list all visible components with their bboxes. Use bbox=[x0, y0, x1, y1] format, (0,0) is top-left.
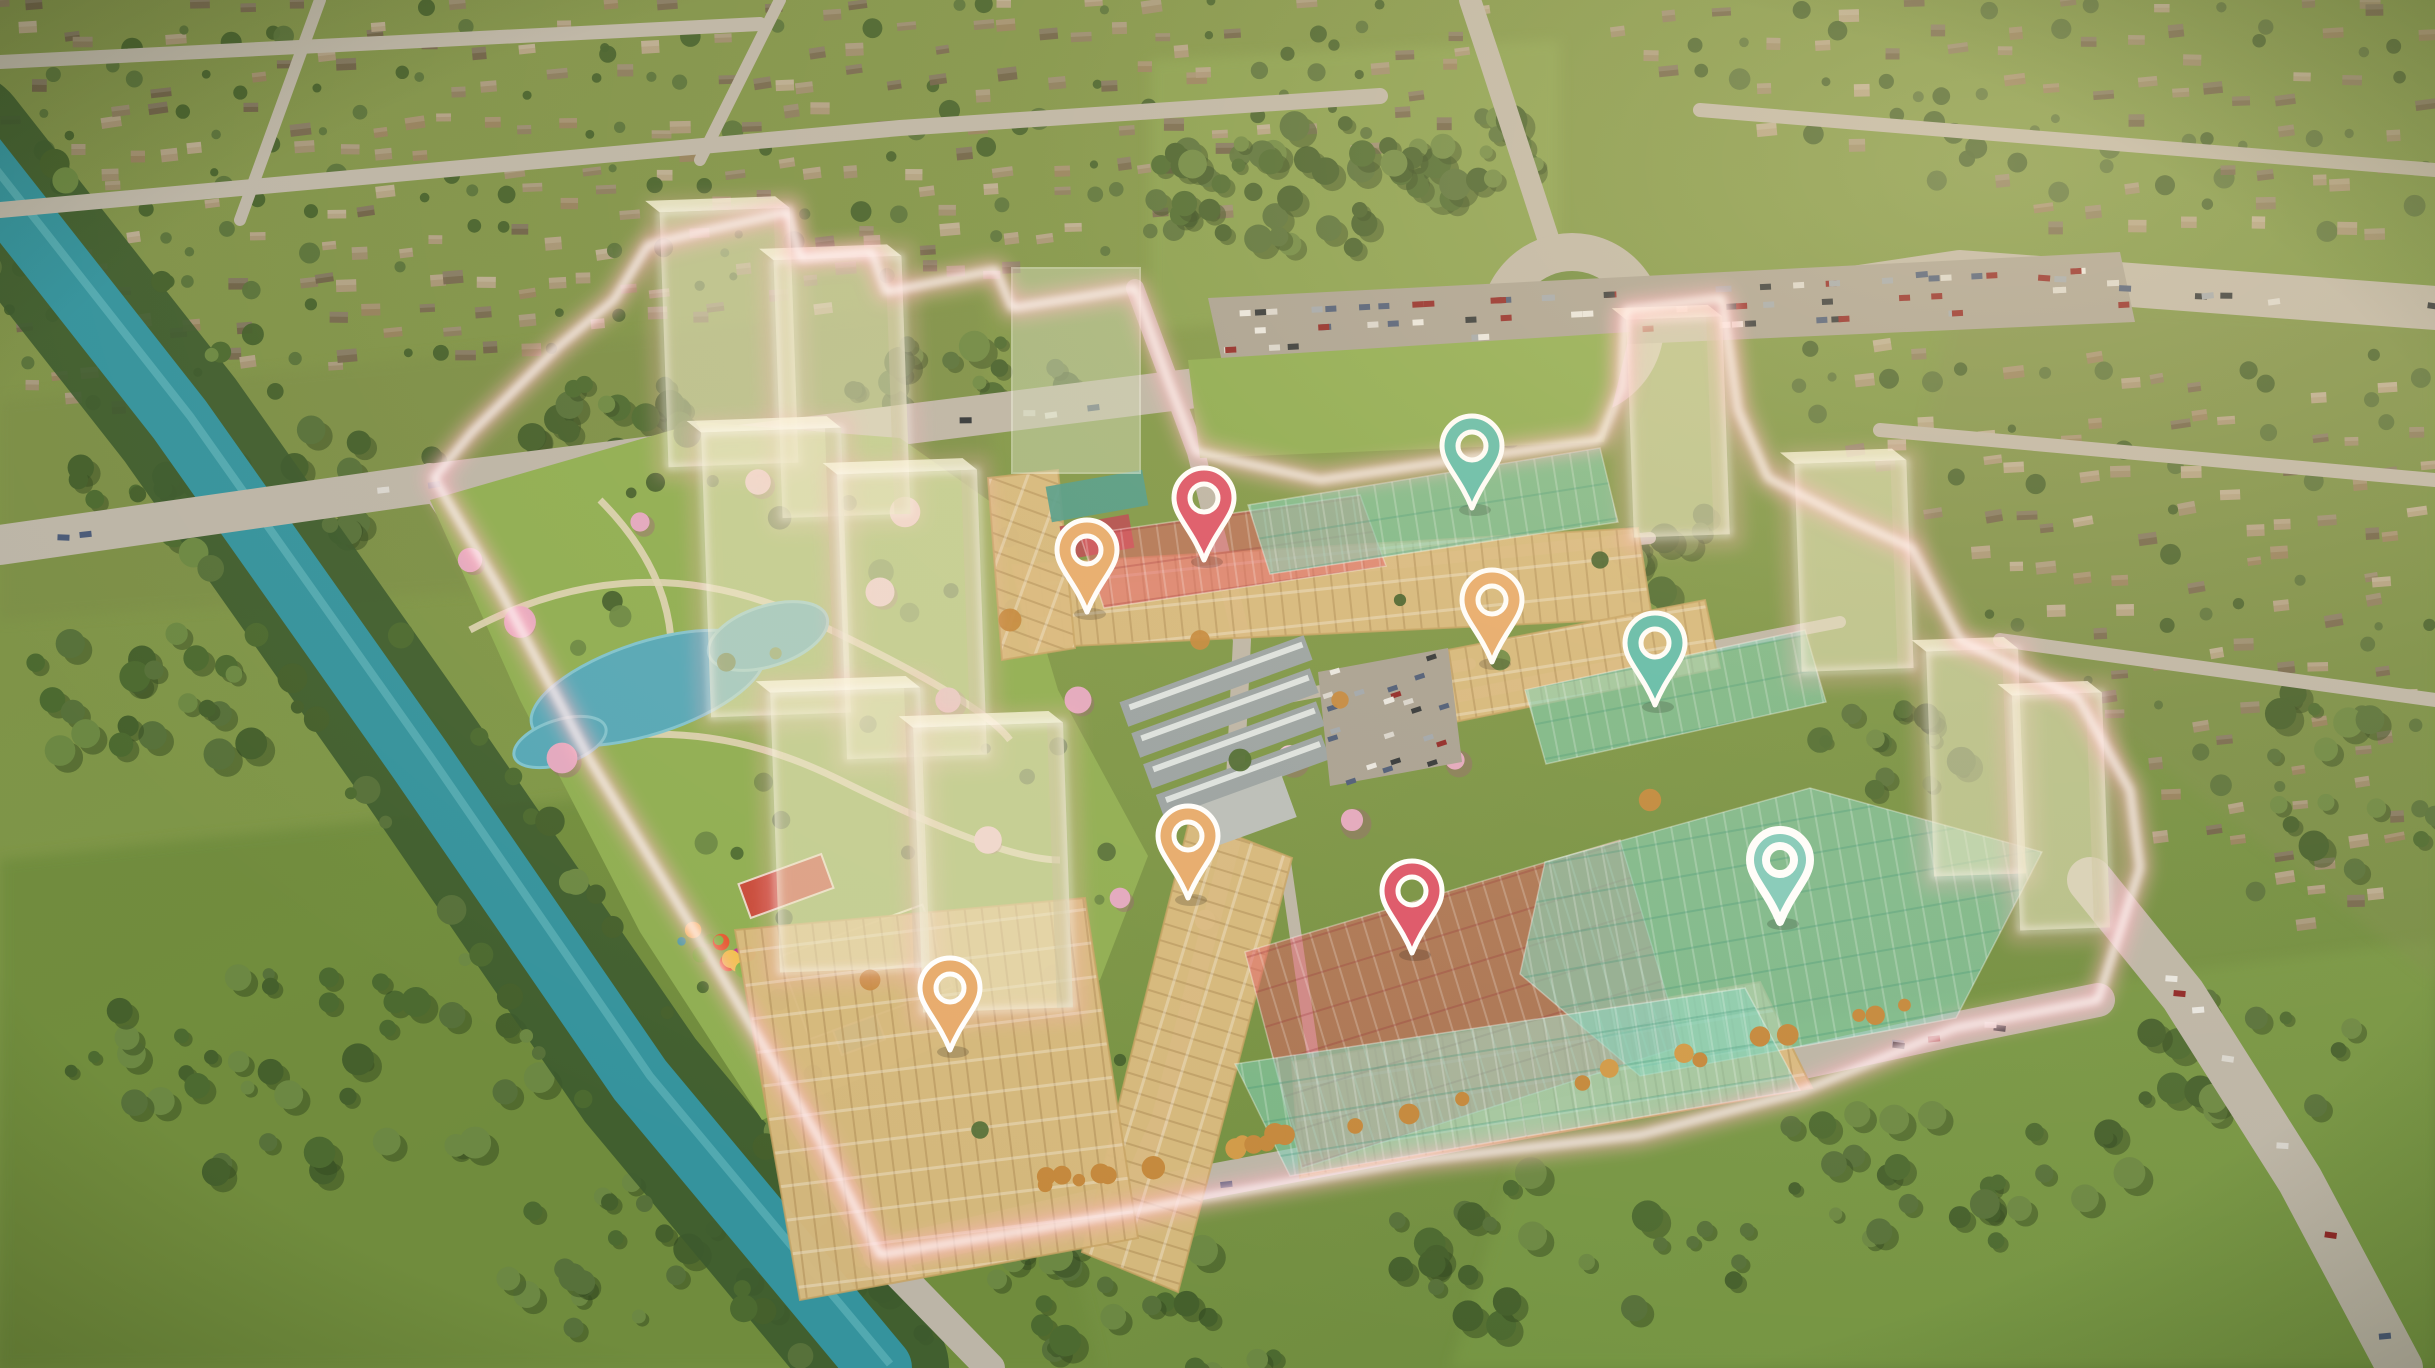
masterplan-aerial-view bbox=[0, 0, 2435, 1368]
masterplan-scene bbox=[0, 0, 2435, 1368]
layer-lighting-overlay bbox=[0, 0, 2435, 1368]
